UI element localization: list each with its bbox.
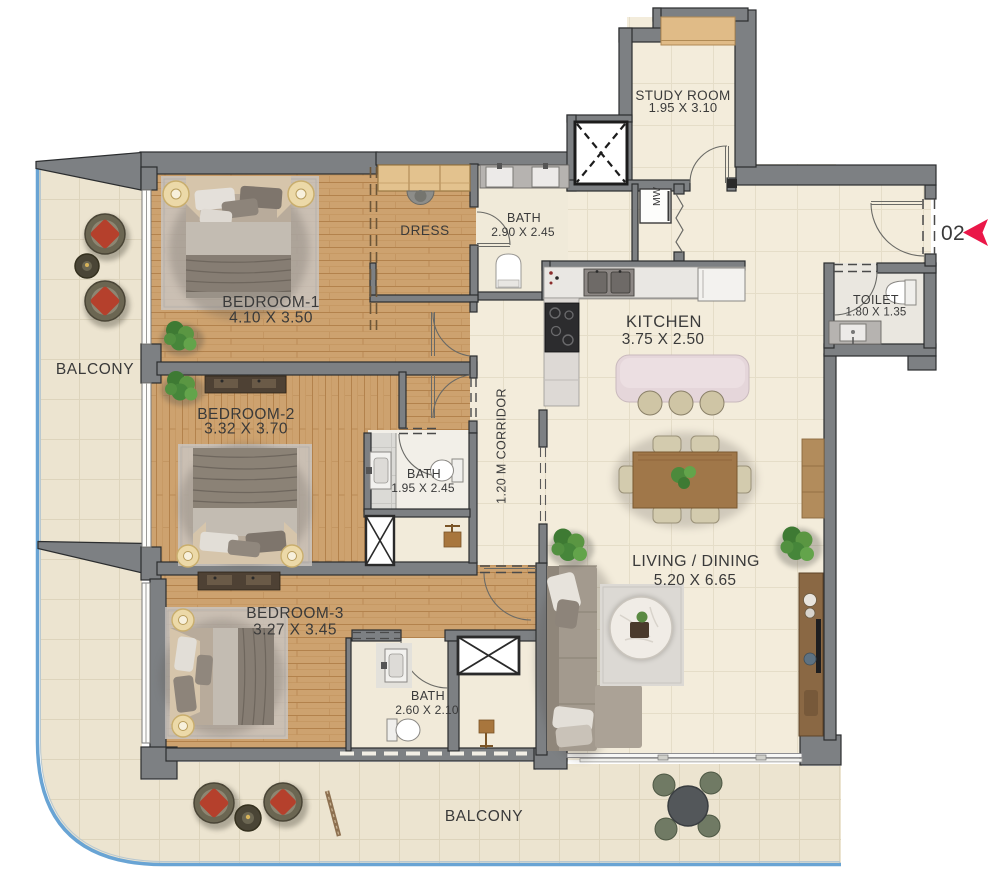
svg-text:1.95 X 2.45: 1.95 X 2.45	[391, 481, 455, 495]
svg-text:BALCONY: BALCONY	[56, 361, 134, 378]
svg-text:1.80 X 1.35: 1.80 X 1.35	[845, 307, 906, 319]
svg-text:1.20 M CORRIDOR: 1.20 M CORRIDOR	[495, 388, 509, 504]
svg-text:MW: MW	[651, 187, 663, 206]
svg-text:4.10 X 3.50: 4.10 X 3.50	[229, 310, 313, 327]
svg-text:5.20 X 6.65: 5.20 X 6.65	[654, 572, 737, 589]
svg-text:3.32 X 3.70: 3.32 X 3.70	[204, 421, 288, 438]
svg-text:LIVING / DINING: LIVING / DINING	[632, 553, 760, 570]
svg-text:BATH: BATH	[411, 689, 445, 703]
svg-text:3.75 X 2.50: 3.75 X 2.50	[622, 331, 705, 348]
svg-text:BEDROOM-1: BEDROOM-1	[222, 294, 319, 311]
svg-text:BATH: BATH	[507, 211, 541, 225]
svg-text:3.27 X 3.45: 3.27 X 3.45	[253, 622, 337, 639]
svg-text:1.95 X 3.10: 1.95 X 3.10	[649, 100, 718, 115]
svg-text:2.60 X 2.10: 2.60 X 2.10	[395, 703, 459, 717]
svg-text:BEDROOM-3: BEDROOM-3	[246, 605, 343, 622]
svg-text:TOILET: TOILET	[853, 293, 899, 307]
svg-text:2.90 X 2.45: 2.90 X 2.45	[491, 225, 555, 239]
svg-text:BATH: BATH	[407, 467, 441, 481]
svg-text:02: 02	[941, 222, 965, 245]
svg-text:KITCHEN: KITCHEN	[626, 313, 702, 331]
svg-text:DRESS: DRESS	[400, 223, 450, 238]
svg-text:BALCONY: BALCONY	[445, 808, 523, 825]
